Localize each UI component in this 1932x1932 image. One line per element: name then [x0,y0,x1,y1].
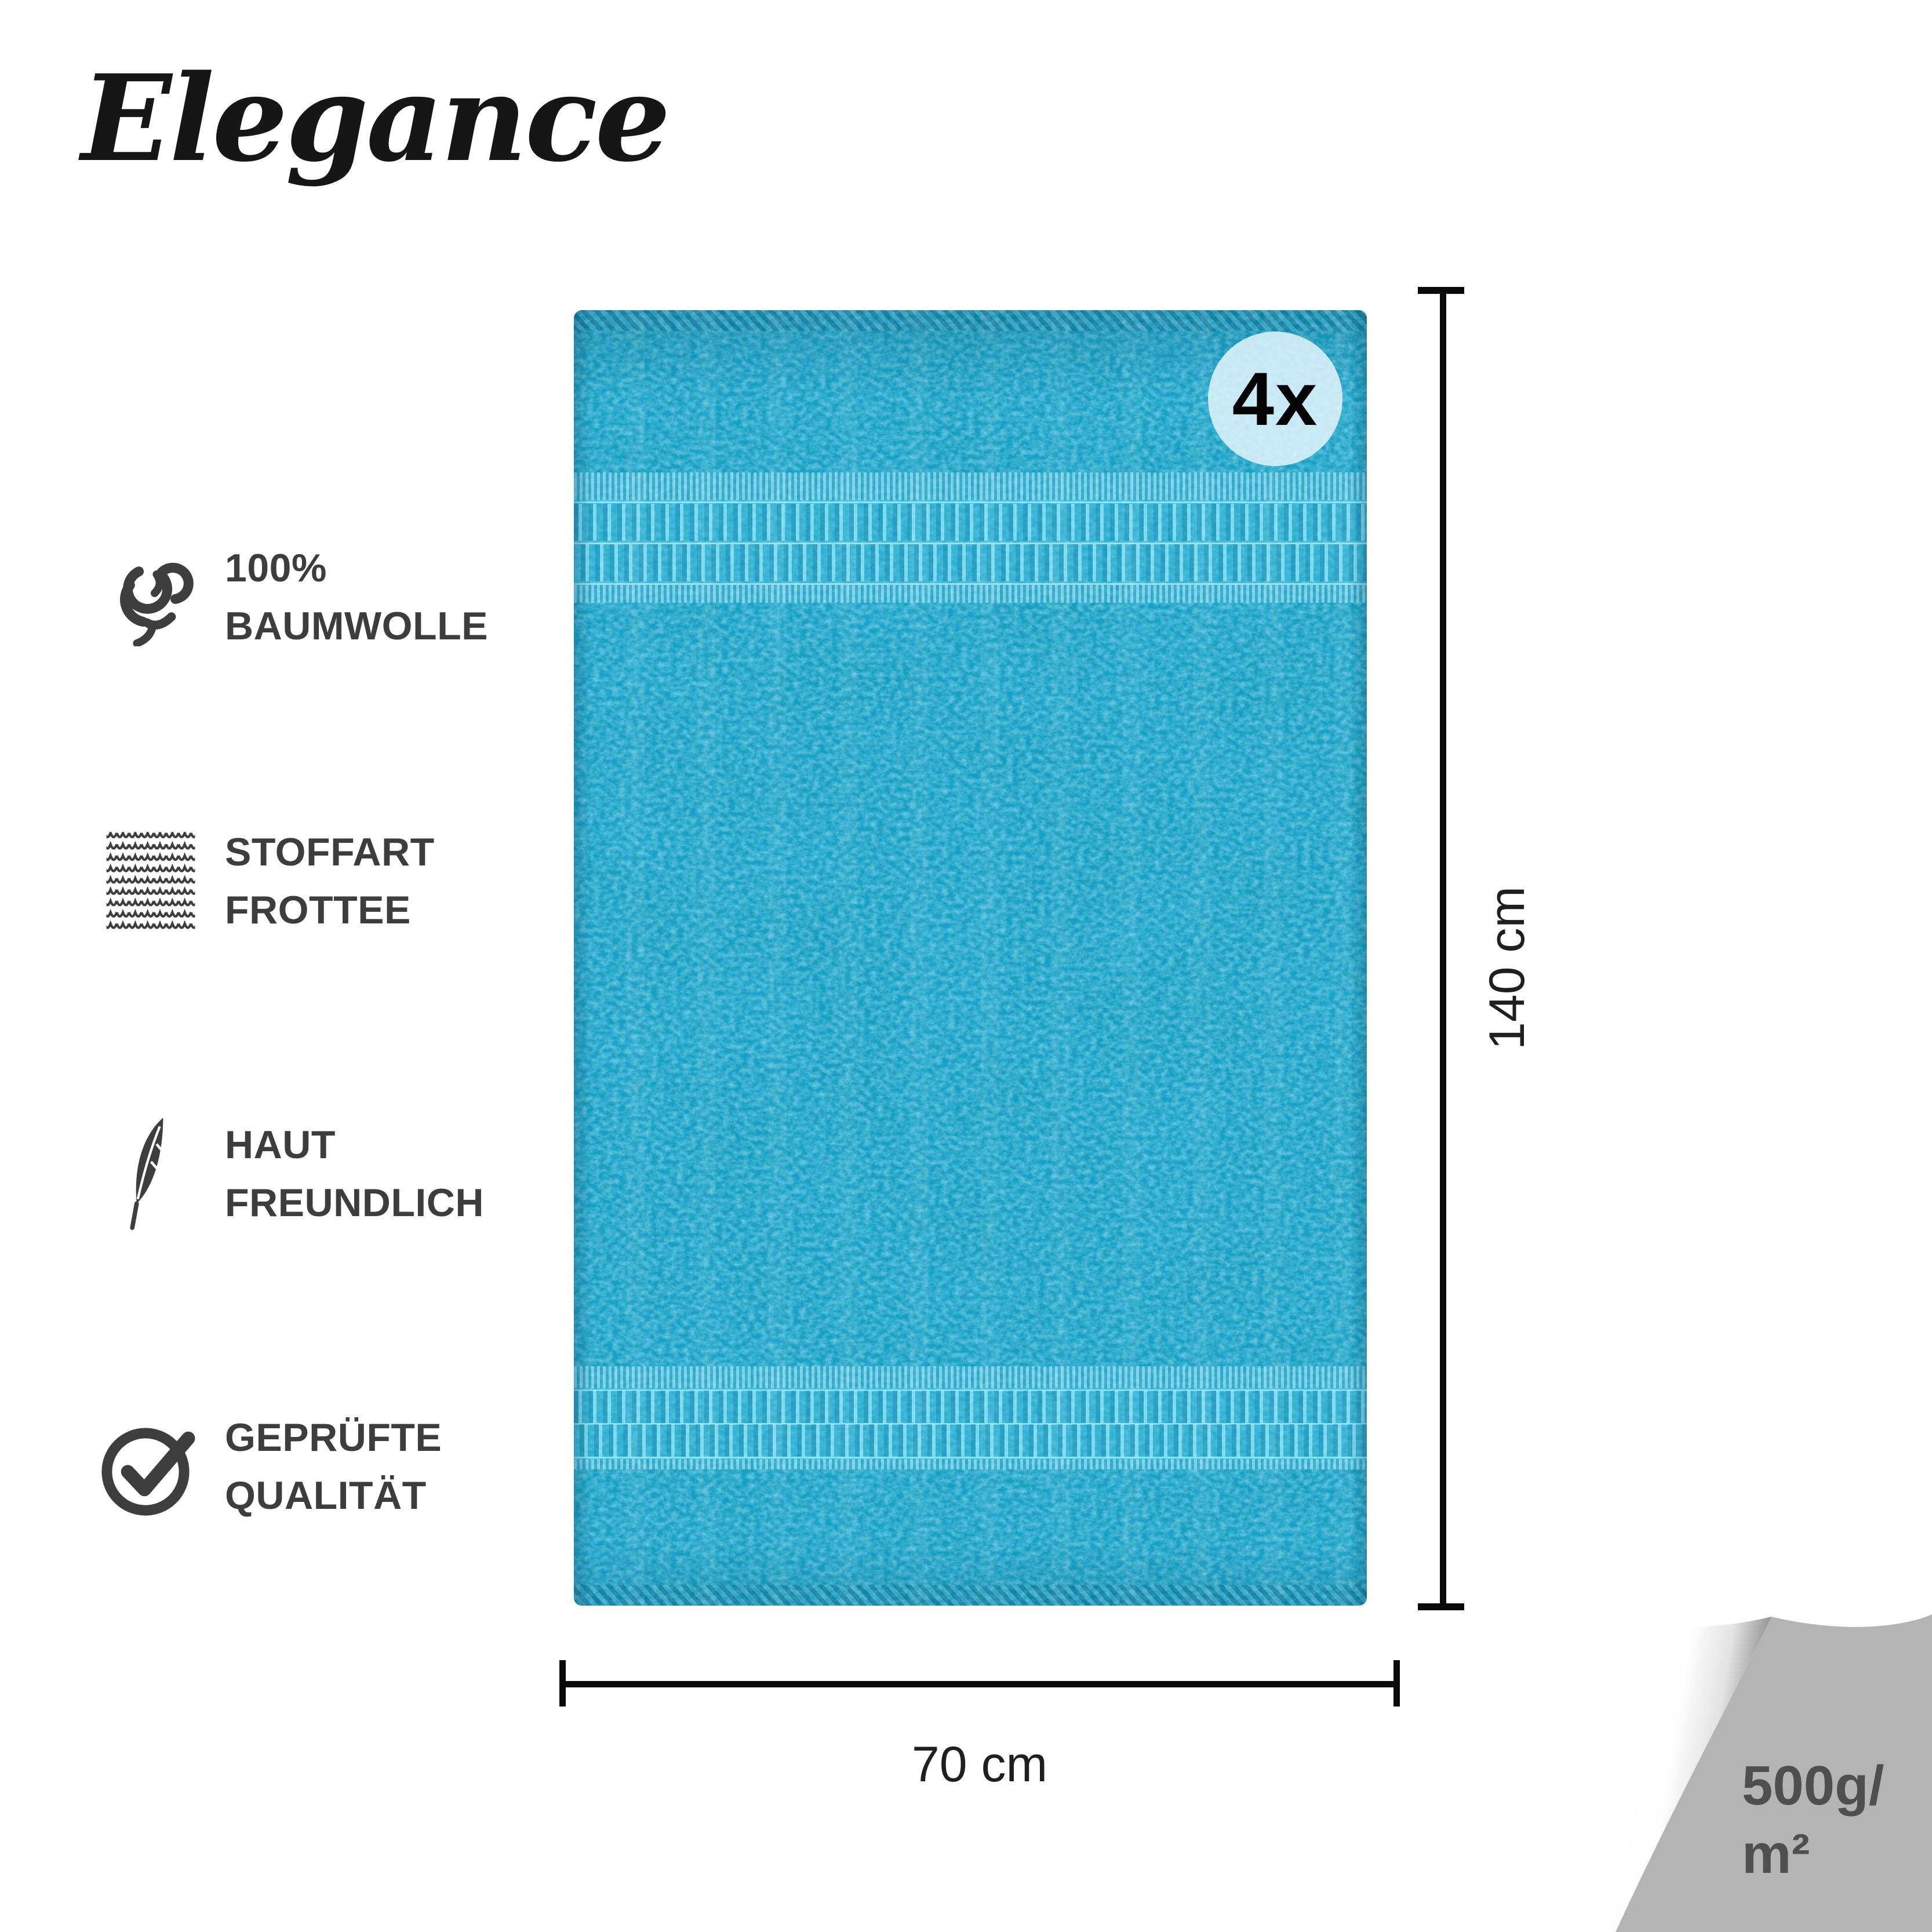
check-circle-icon [99,1406,203,1527]
height-dimension-line [1440,287,1446,1610]
brand-logo: Elegance [81,49,668,188]
knit-fabric-icon [99,820,203,942]
towel-shading [574,310,1367,1606]
height-dimension-cap-bottom [1418,1603,1464,1610]
width-dimension-cap-right [1393,1660,1400,1707]
feature-quality: GEPRÜFTE QUALITÄT [99,1406,442,1527]
feature-line: GEPRÜFTE [225,1409,442,1467]
feature-line: HAUT [225,1116,484,1174]
weight-line-2: m² [1742,1820,1884,1889]
feature-cotton: 100% BAUMWOLLE [99,536,488,658]
feature-fabric: STOFFART FROTTEE [99,820,435,942]
feather-icon [99,1113,203,1235]
quantity-badge: 4x [1208,332,1342,466]
cotton-icon [99,536,203,658]
towel-image: 4x [574,310,1367,1606]
feature-skin: HAUT FREUNDLICH [99,1113,484,1235]
quantity-badge-label: 4x [1232,355,1319,442]
feature-line: 100% [225,539,488,597]
weight-label: 500g/ m² [1742,1752,1884,1889]
feature-line: FROTTEE [225,881,435,939]
feature-line: BAUMWOLLE [225,597,488,655]
width-dimension-label: 70 cm [864,1736,1096,1793]
weight-line-1: 500g/ [1742,1752,1884,1820]
product-infographic: Elegance 100% BAUMWOLLE [0,0,1932,1932]
feature-line: FREUNDLICH [225,1174,484,1232]
feature-line: STOFFART [225,823,435,881]
height-dimension-label: 140 cm [1479,852,1535,1084]
feature-line: QUALITÄT [225,1467,442,1525]
width-dimension-line [559,1681,1400,1687]
